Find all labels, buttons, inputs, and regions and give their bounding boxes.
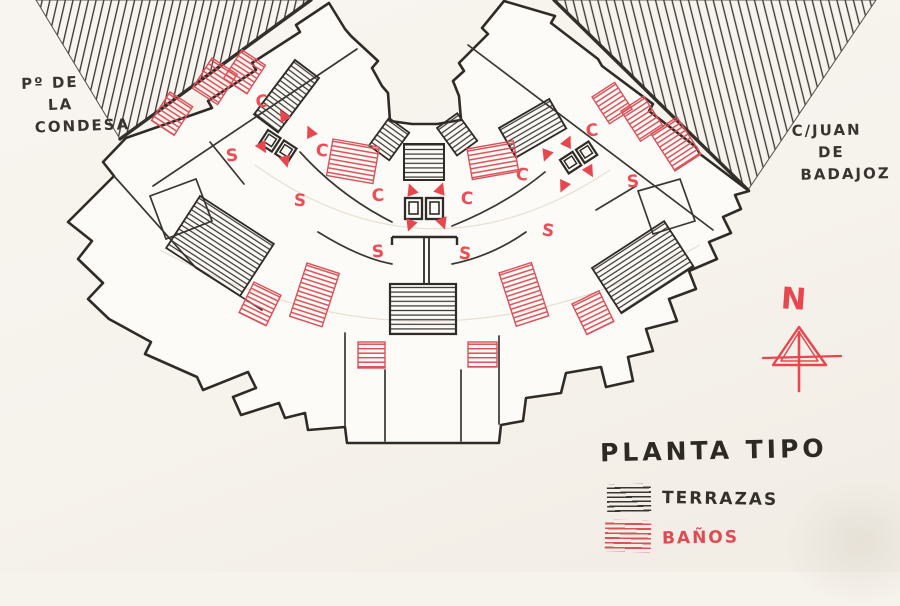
street-line: BADAJOZ	[800, 163, 891, 186]
street-line: CONDESA	[34, 114, 130, 139]
page-title: PLANTA TIPO	[600, 434, 828, 468]
floor-plan-drawing	[0, 0, 900, 572]
street-label-calle-juan-de-badajoz: C/JUAN DE BADAJOZ	[791, 119, 890, 186]
legend-label-terraces: TERRAZAS	[662, 488, 779, 510]
street-line: DE	[818, 141, 891, 164]
street-label-paseo-de-la-condesa: Pº DE LA CONDESA	[21, 70, 131, 139]
street-line: C/JUAN	[791, 119, 890, 142]
north-arrow-icon	[763, 327, 841, 391]
scan-smudge	[784, 476, 900, 606]
north-letter: N	[780, 281, 807, 318]
terraces-hatch-swatch-icon	[607, 484, 652, 515]
legend-label-banos: BAÑOS	[662, 527, 739, 548]
scanned-floor-plan-page: CCCCCCSSSSSS Pº DE LA CONDESA C/JUAN DE …	[0, 0, 900, 572]
street-line: LA	[48, 92, 130, 117]
baths-hatch-swatch-icon	[605, 520, 652, 553]
